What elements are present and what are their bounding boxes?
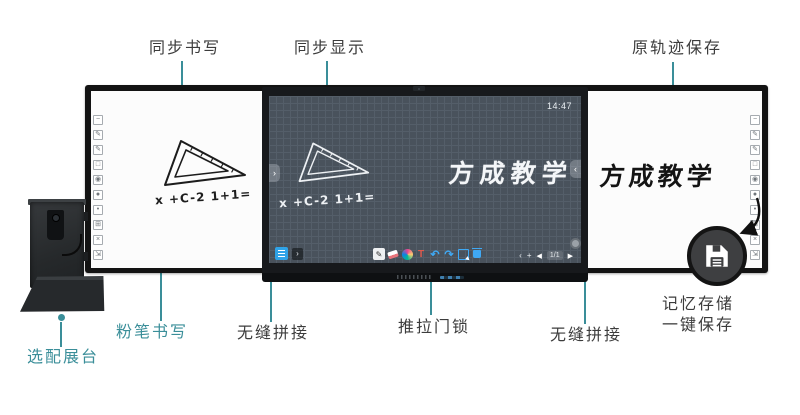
door-lock-mechanism bbox=[440, 276, 464, 279]
leader-line-optional-stand bbox=[60, 322, 62, 347]
smartboard-product-diagram: 同步书写 同步显示 原轨迹保存 选配展台 粉笔书写 无缝拼接 推拉门锁 无缝拼接… bbox=[0, 0, 800, 415]
panel-toggle-left-icon[interactable]: › bbox=[269, 164, 280, 182]
select-shape bbox=[458, 249, 469, 260]
camera-lens-icon bbox=[52, 214, 60, 222]
side-tool-icon[interactable]: ✎ bbox=[93, 130, 103, 140]
smartboard: − ✎ ✎ □ ◉ ● • ⊞ × ⇲ x +C-2 1+1= bbox=[85, 85, 768, 273]
label-memory-save-line1: 记忆存储 bbox=[662, 296, 734, 314]
undo-icon[interactable]: ↶ bbox=[429, 248, 441, 260]
side-tool-icon[interactable]: • bbox=[93, 205, 103, 215]
digital-formula: x +C-2 1+1= bbox=[279, 190, 376, 211]
page-back-icon[interactable]: ◀ bbox=[536, 252, 541, 260]
palette-tool-icon[interactable] bbox=[401, 248, 413, 260]
side-tool-icon[interactable]: □ bbox=[93, 160, 103, 170]
chalk-triangle-drawing bbox=[161, 139, 247, 191]
side-tool-icon[interactable]: − bbox=[93, 115, 103, 125]
side-tool-icon[interactable]: ● bbox=[93, 190, 103, 200]
label-door-lock: 推拉门锁 bbox=[384, 319, 484, 337]
floppy-disk-icon bbox=[703, 242, 731, 270]
toolbar-tools-group: ✎ T ↶ ↷ bbox=[373, 248, 483, 260]
side-tool-icon[interactable]: ◉ bbox=[750, 175, 760, 185]
side-tool-icon[interactable]: ⇲ bbox=[93, 250, 103, 260]
left-whiteboard-panel: − ✎ ✎ □ ◉ ● • ⊞ × ⇲ x +C-2 1+1= bbox=[91, 91, 262, 268]
label-optional-stand: 选配展台 bbox=[13, 349, 113, 367]
bottom-tray bbox=[262, 273, 588, 282]
floating-widget-button[interactable] bbox=[570, 238, 581, 249]
leader-line-chalk-writing bbox=[160, 268, 162, 321]
select-tool-icon[interactable] bbox=[457, 248, 469, 260]
left-panel-tool-column: − ✎ ✎ □ ◉ ● • ⊞ × ⇲ bbox=[93, 115, 103, 260]
label-memory-save-line2: 一键保存 bbox=[662, 317, 734, 335]
page-forward-icon[interactable]: ▶ bbox=[568, 252, 573, 260]
expand-toolbar-icon[interactable]: › bbox=[292, 248, 303, 260]
nav-prev-icon[interactable]: ‹ bbox=[519, 251, 522, 260]
side-tool-icon[interactable]: ⇲ bbox=[750, 250, 760, 260]
label-chalk-writing: 粉笔书写 bbox=[102, 324, 202, 342]
page-indicator: 1/1 bbox=[547, 251, 563, 260]
delete-tool-icon[interactable] bbox=[471, 248, 483, 260]
lcd-display[interactable]: 14:47 x +C-2 1+1= 方成教学 › ‹ bbox=[269, 96, 581, 263]
curved-arrow bbox=[700, 186, 775, 241]
label-seamless-left: 无缝拼接 bbox=[223, 325, 323, 343]
redo-icon[interactable]: ↷ bbox=[443, 248, 455, 260]
side-tool-icon[interactable]: × bbox=[93, 235, 103, 245]
toolbar-menu-group: › bbox=[275, 247, 303, 260]
text-tool-icon[interactable]: T bbox=[415, 248, 427, 260]
leader-dot-optional-stand bbox=[58, 314, 65, 321]
label-sync-writing: 同步书写 bbox=[135, 40, 235, 58]
side-tool-icon[interactable]: − bbox=[750, 115, 760, 125]
panel-toggle-right-icon[interactable]: ‹ bbox=[570, 160, 581, 178]
side-tool-icon[interactable]: ◉ bbox=[93, 175, 103, 185]
label-seamless-right: 无缝拼接 bbox=[536, 327, 636, 345]
digital-triangle-drawing bbox=[296, 140, 370, 188]
touchscreen-module: 14:47 x +C-2 1+1= 方成教学 › ‹ bbox=[262, 87, 588, 273]
trash-shape bbox=[473, 250, 481, 258]
side-tool-icon[interactable]: □ bbox=[750, 160, 760, 170]
side-tool-icon[interactable]: ⊞ bbox=[93, 220, 103, 230]
front-camera-icon bbox=[413, 86, 425, 91]
clock: 14:47 bbox=[547, 101, 572, 111]
side-tool-icon[interactable]: ✎ bbox=[93, 145, 103, 155]
leader-line-door-lock bbox=[430, 281, 432, 315]
side-tool-icon[interactable]: ✎ bbox=[750, 145, 760, 155]
menu-lines bbox=[278, 250, 285, 257]
eraser-shape bbox=[387, 249, 399, 259]
label-sync-display: 同步显示 bbox=[280, 40, 380, 58]
side-tool-icon[interactable]: ✎ bbox=[750, 130, 760, 140]
speaker-grille bbox=[397, 275, 433, 279]
toolbar-pager-group: ‹ + ◀ 1/1 ▶ bbox=[519, 251, 573, 260]
pen-tool-icon[interactable]: ✎ bbox=[373, 248, 385, 260]
eraser-tool-icon[interactable] bbox=[387, 248, 399, 260]
screen-brand-text: 方成教学 bbox=[447, 154, 574, 190]
palette-shape bbox=[402, 249, 413, 260]
label-trace-save: 原轨迹保存 bbox=[617, 40, 737, 58]
add-page-icon[interactable]: + bbox=[527, 251, 532, 260]
menu-icon[interactable] bbox=[275, 247, 288, 260]
